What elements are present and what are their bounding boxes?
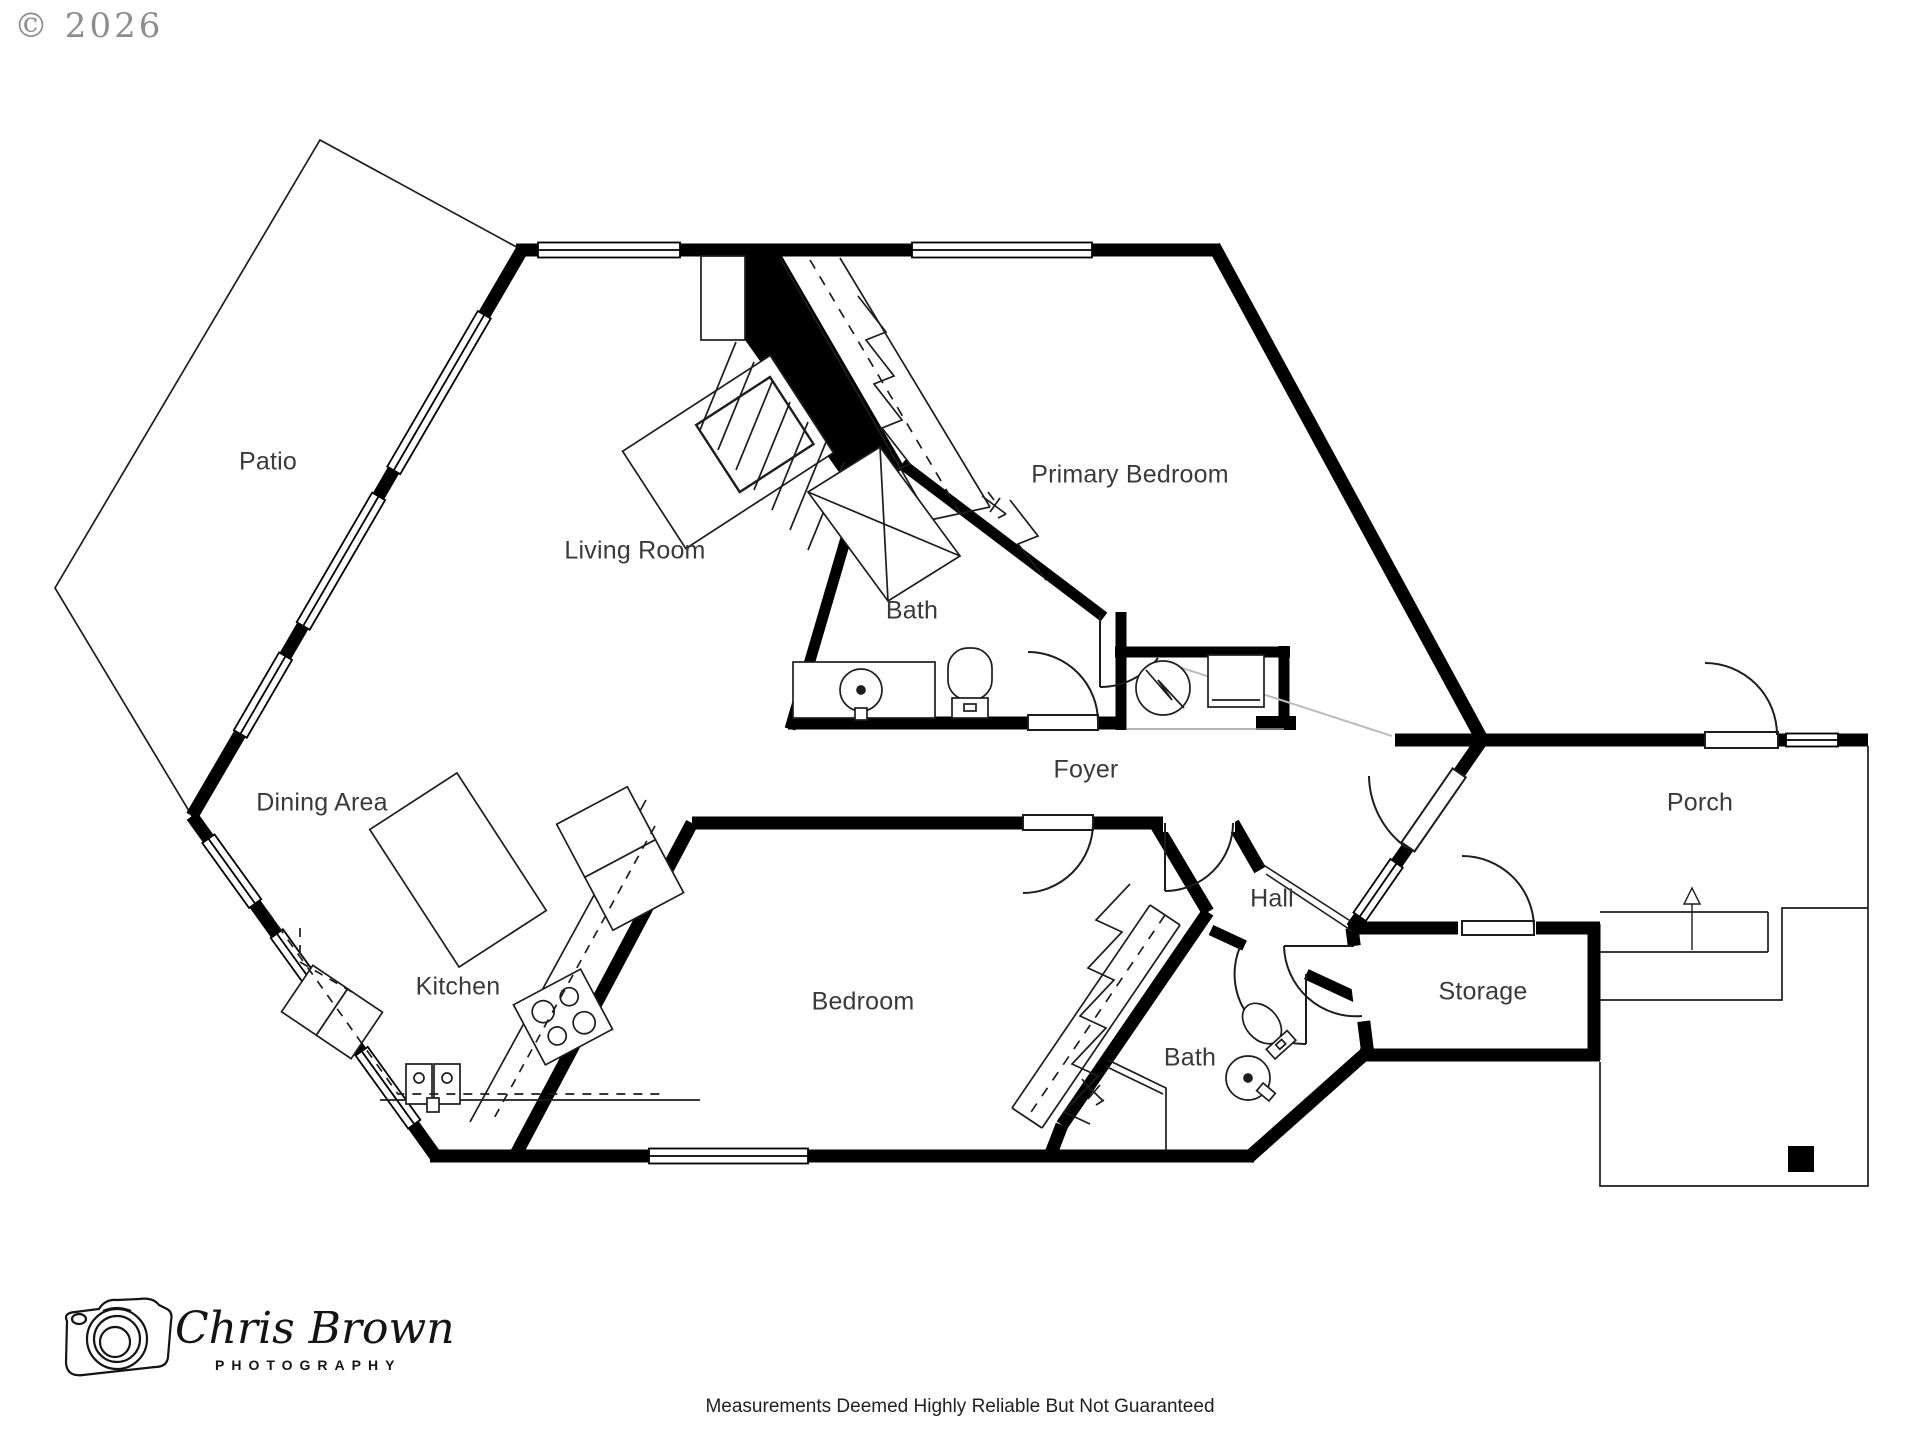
corner-cabinets [282, 965, 383, 1058]
wall-details [1256, 716, 1296, 730]
door-bath-primary [1028, 652, 1098, 730]
porch-features [1600, 746, 1868, 1186]
room-label-patio: Patio [239, 448, 297, 477]
window-foyer-diagonal [1353, 859, 1402, 921]
room-label-bath-primary: Bath [886, 597, 938, 626]
patio-outline [55, 140, 522, 816]
vanity-sink [793, 662, 935, 720]
room-label-bath-hall: Bath [1164, 1044, 1216, 1073]
window-top-right [912, 243, 1092, 258]
kitchen-island [370, 773, 547, 967]
entry-niche [701, 256, 745, 340]
kitchen-fixtures [268, 773, 700, 1122]
toilet-lower [1235, 996, 1298, 1061]
bedroom-closet [1012, 884, 1180, 1128]
copyright-notice: © 2026 [14, 6, 163, 46]
room-label-storage: Storage [1439, 978, 1528, 1007]
window-west-wall [234, 311, 491, 738]
porch-steps [1600, 888, 1868, 1000]
room-label-living-room: Living Room [564, 537, 705, 566]
camera-icon [55, 1295, 175, 1395]
window-porch [1786, 734, 1838, 747]
window-bedroom-south [649, 1149, 808, 1164]
door-bedroom [1023, 815, 1093, 893]
room-label-hall: Hall [1250, 885, 1294, 914]
door-foyer-porch [1369, 768, 1466, 851]
logo-tagline: PHOTOGRAPHY [215, 1357, 401, 1373]
window-top-left [538, 243, 680, 258]
porch-edge [1600, 746, 1868, 1186]
wall-foot [1256, 716, 1296, 730]
door-storage [1458, 856, 1536, 937]
floor-plan-page: © 2026 Patio Living Room Primary Bedroom… [0, 0, 1920, 1440]
room-label-dining-area: Dining Area [256, 789, 387, 818]
room-label-bedroom: Bedroom [812, 988, 915, 1017]
toilet [948, 648, 992, 718]
room-label-foyer: Foyer [1054, 756, 1119, 785]
room-label-kitchen: Kitchen [416, 973, 501, 1002]
tub-faucet-glyph [982, 492, 1006, 518]
porch-post [1788, 1146, 1814, 1172]
up-arrow [1684, 888, 1700, 904]
bath-hall-fixtures [1082, 996, 1297, 1150]
floor-plan-canvas [0, 0, 1920, 1440]
room-label-porch: Porch [1667, 789, 1733, 818]
photographer-logo: Chris Brown PHOTOGRAPHY [55, 1295, 395, 1405]
bath-primary-fixtures [793, 447, 1006, 720]
sink-lower [1226, 1056, 1275, 1101]
utility-closet [1136, 655, 1264, 715]
door-porch-entry [1705, 663, 1778, 748]
disclaimer-text: Measurements Deemed Highly Reliable But … [0, 1396, 1920, 1418]
room-label-primary-bedroom: Primary Bedroom [1031, 461, 1229, 490]
logo-name: Chris Brown [175, 1303, 455, 1354]
stove-counter [470, 787, 684, 1122]
doors [1023, 615, 1778, 1044]
